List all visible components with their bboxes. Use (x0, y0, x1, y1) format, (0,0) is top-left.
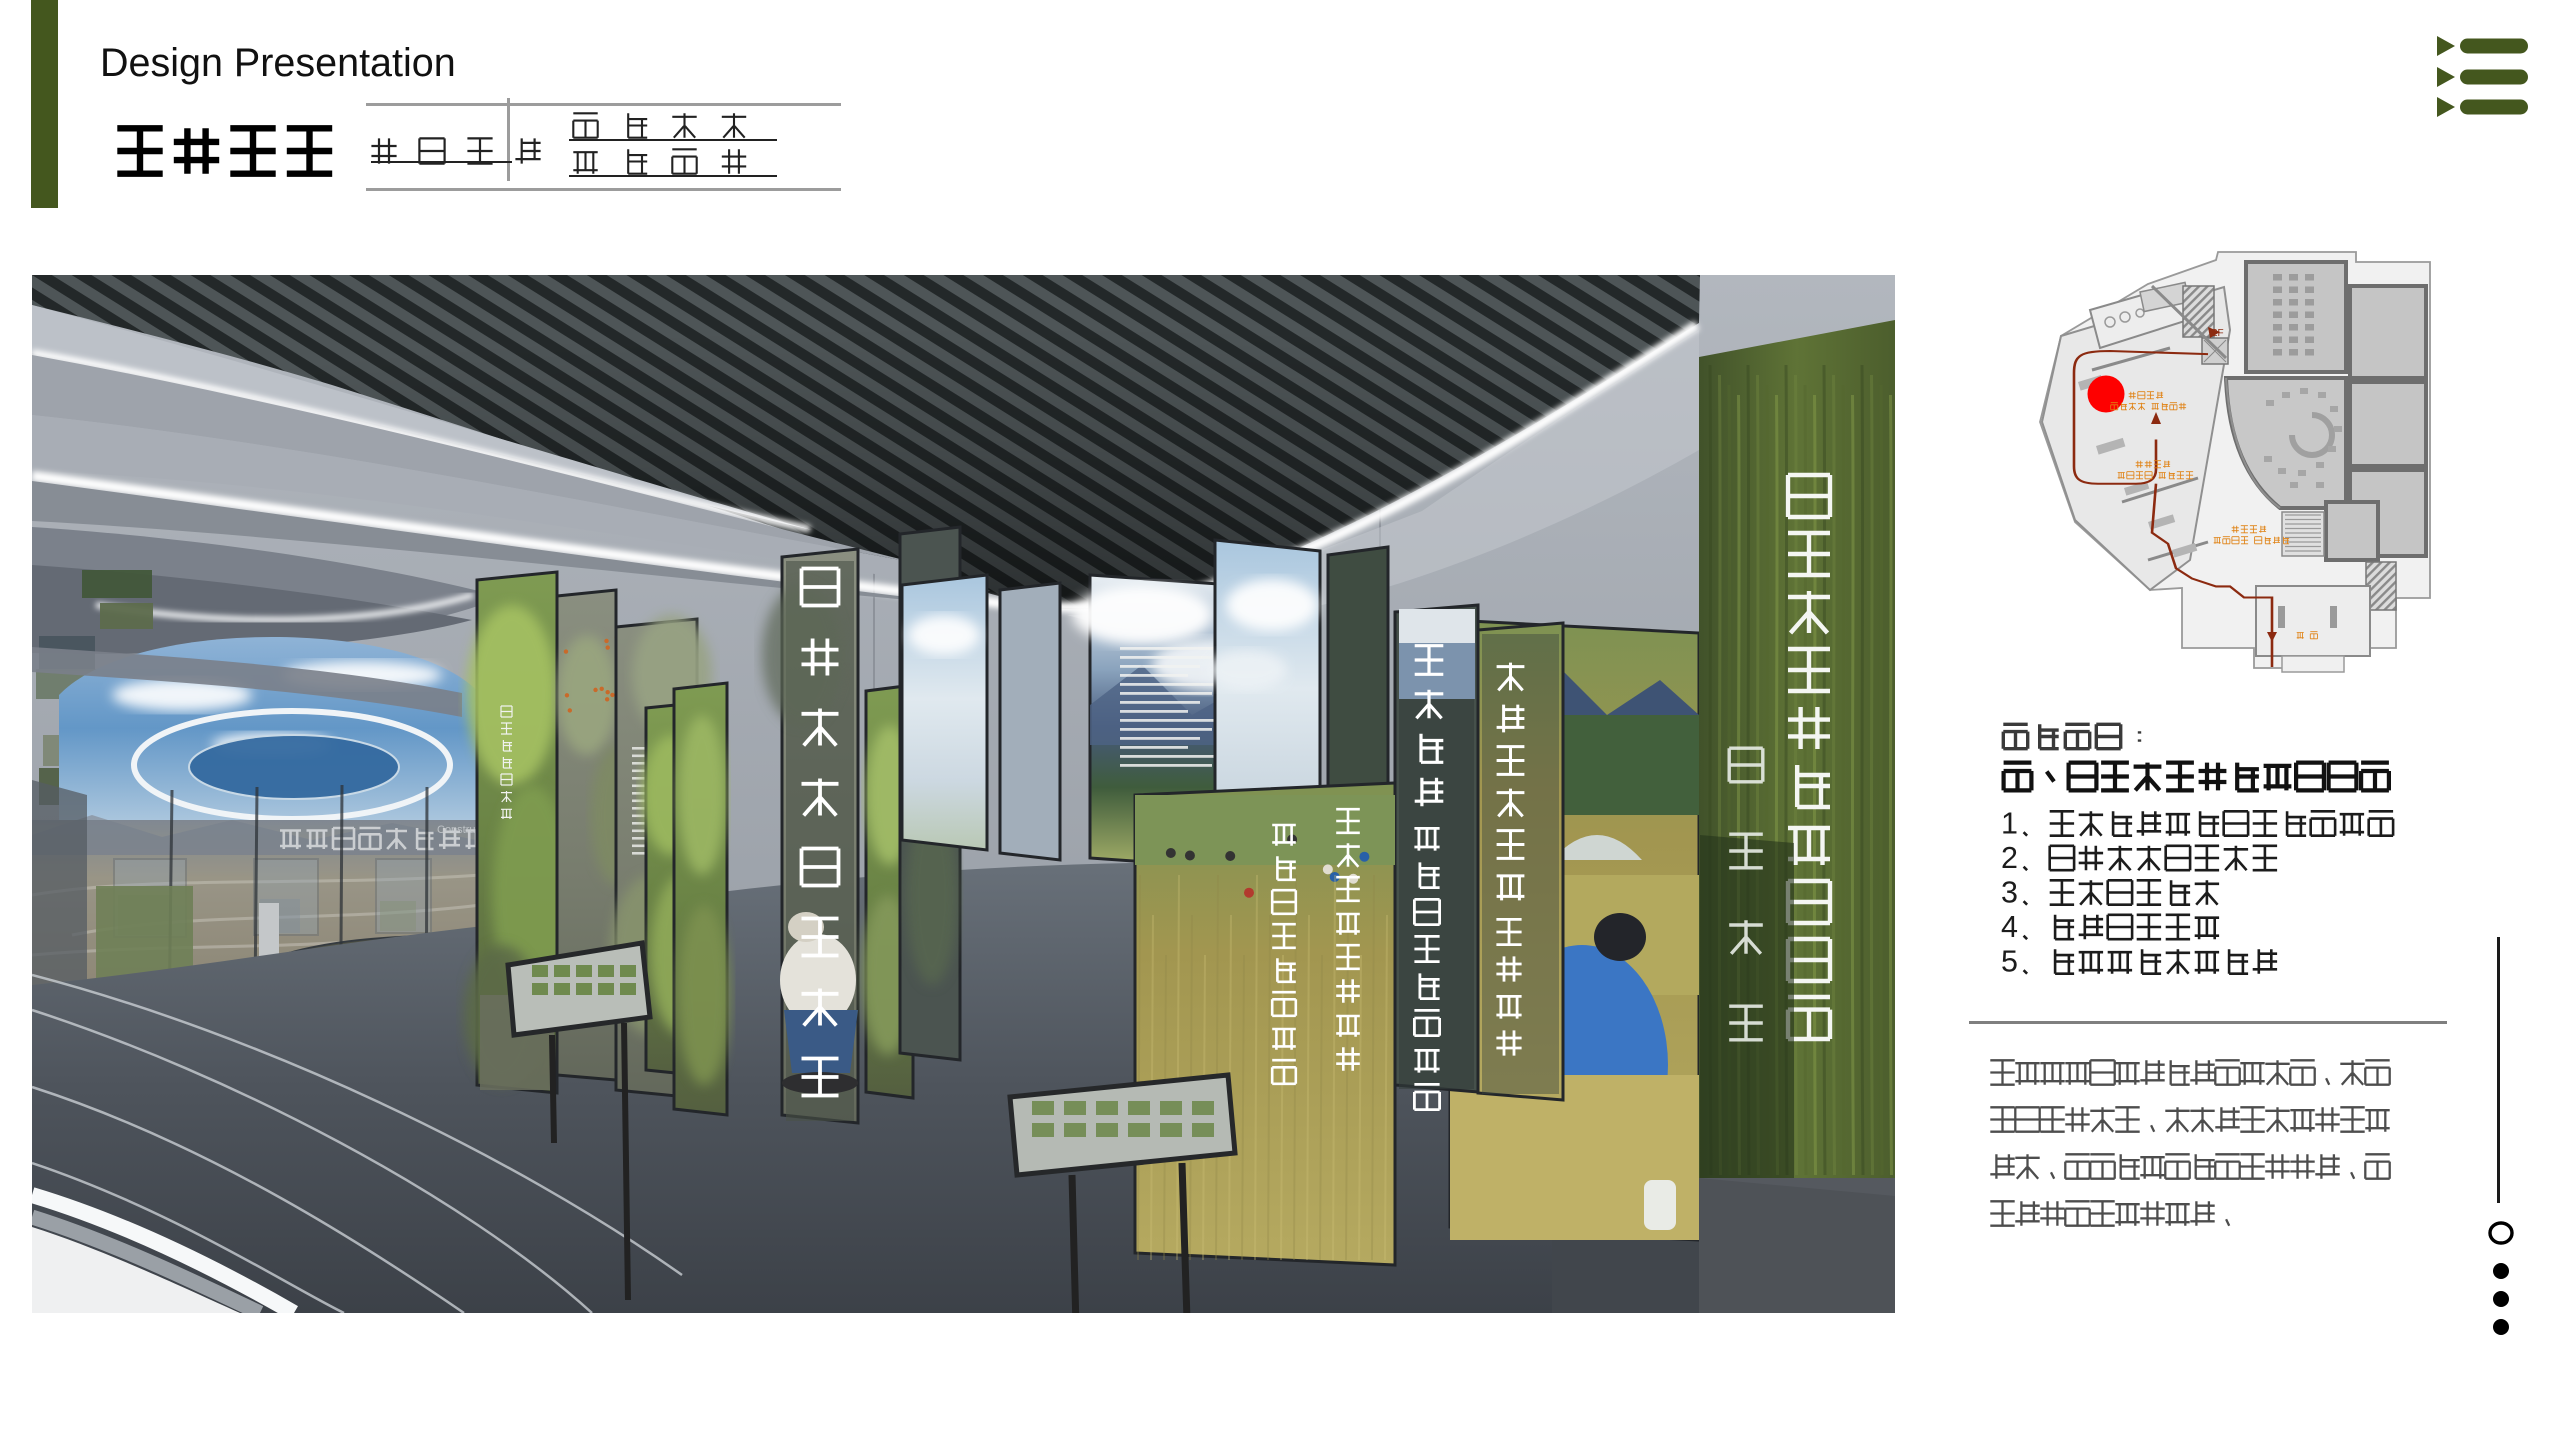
svg-text:2F: 2F (2212, 328, 2224, 339)
svg-text:1: 1 (2001, 807, 2018, 841)
svg-text:5: 5 (2001, 945, 2018, 979)
svg-text:2: 2 (2001, 841, 2018, 875)
svg-text:3: 3 (2001, 876, 2018, 910)
svg-text:4: 4 (2001, 910, 2018, 944)
